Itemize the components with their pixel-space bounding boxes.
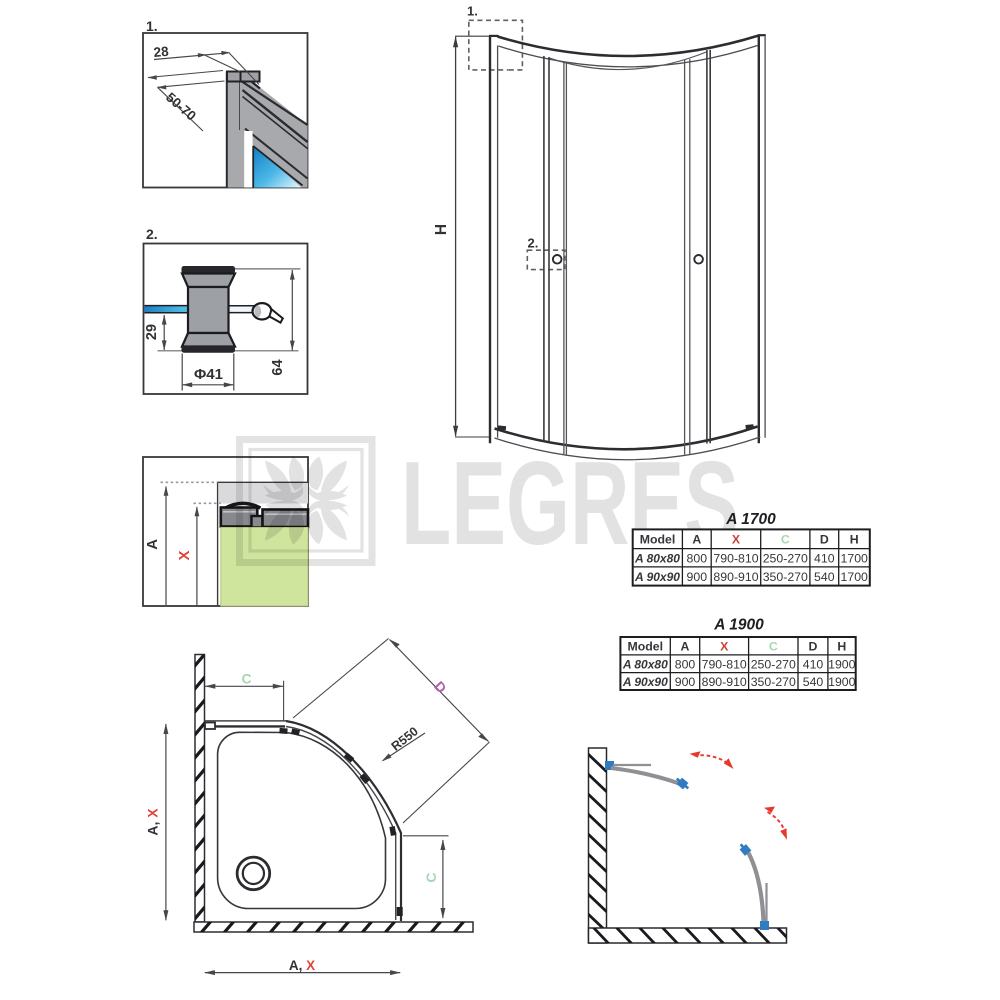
svg-text:C: C [423,872,439,882]
svg-text:1.: 1. [467,4,478,19]
svg-text:Model: Model [628,640,664,654]
svg-text:A 80x80: A 80x80 [622,657,668,671]
svg-text:A 1700: A 1700 [725,511,776,528]
svg-text:410: 410 [814,551,835,565]
svg-text:H: H [850,533,859,547]
svg-text:900: 900 [687,570,708,584]
svg-text:X: X [732,533,741,547]
svg-text:800: 800 [687,551,708,565]
svg-text:28: 28 [153,44,170,60]
svg-text:A 80x80: A 80x80 [634,551,680,565]
svg-text:800: 800 [675,657,696,671]
svg-text:H: H [837,640,846,654]
svg-text:1.: 1. [146,18,158,34]
svg-text:250-270: 250-270 [751,657,796,671]
svg-text:C: C [769,640,778,654]
svg-text:410: 410 [803,657,824,671]
svg-text:350-270: 350-270 [751,675,796,689]
svg-text:X: X [176,550,193,560]
svg-text:350-270: 350-270 [763,570,808,584]
svg-text:540: 540 [803,675,824,689]
svg-text:790-810: 790-810 [702,657,747,671]
svg-text:A: A [692,533,701,547]
svg-text:250-270: 250-270 [763,551,808,565]
svg-text:C: C [241,671,251,687]
svg-text:A 90x90: A 90x90 [622,675,668,689]
svg-text:2.: 2. [146,226,158,242]
svg-text:Model: Model [640,533,676,547]
svg-text:A: A [144,539,161,550]
svg-text:A: A [681,640,690,654]
svg-text:890-910: 890-910 [713,570,758,584]
svg-text:1700: 1700 [841,570,869,584]
svg-text:D: D [820,533,829,547]
svg-text:X: X [720,640,729,654]
svg-text:A 1900: A 1900 [713,617,764,634]
svg-text:A, X: A, X [289,958,315,973]
svg-text:900: 900 [675,675,696,689]
svg-text:C: C [781,533,790,547]
svg-text:540: 540 [814,570,835,584]
svg-text:64: 64 [270,359,286,375]
svg-text:1700: 1700 [841,551,869,565]
svg-text:A, X: A, X [145,808,161,836]
svg-text:A 90x90: A 90x90 [634,570,680,584]
svg-text:1900: 1900 [828,675,856,689]
svg-text:H: H [433,224,450,235]
svg-text:Φ41: Φ41 [194,366,223,383]
svg-text:890-910: 890-910 [702,675,747,689]
svg-text:2.: 2. [528,236,539,251]
svg-text:29: 29 [144,324,160,340]
svg-text:790-810: 790-810 [713,551,758,565]
svg-text:D: D [809,640,818,654]
svg-text:1900: 1900 [828,657,856,671]
